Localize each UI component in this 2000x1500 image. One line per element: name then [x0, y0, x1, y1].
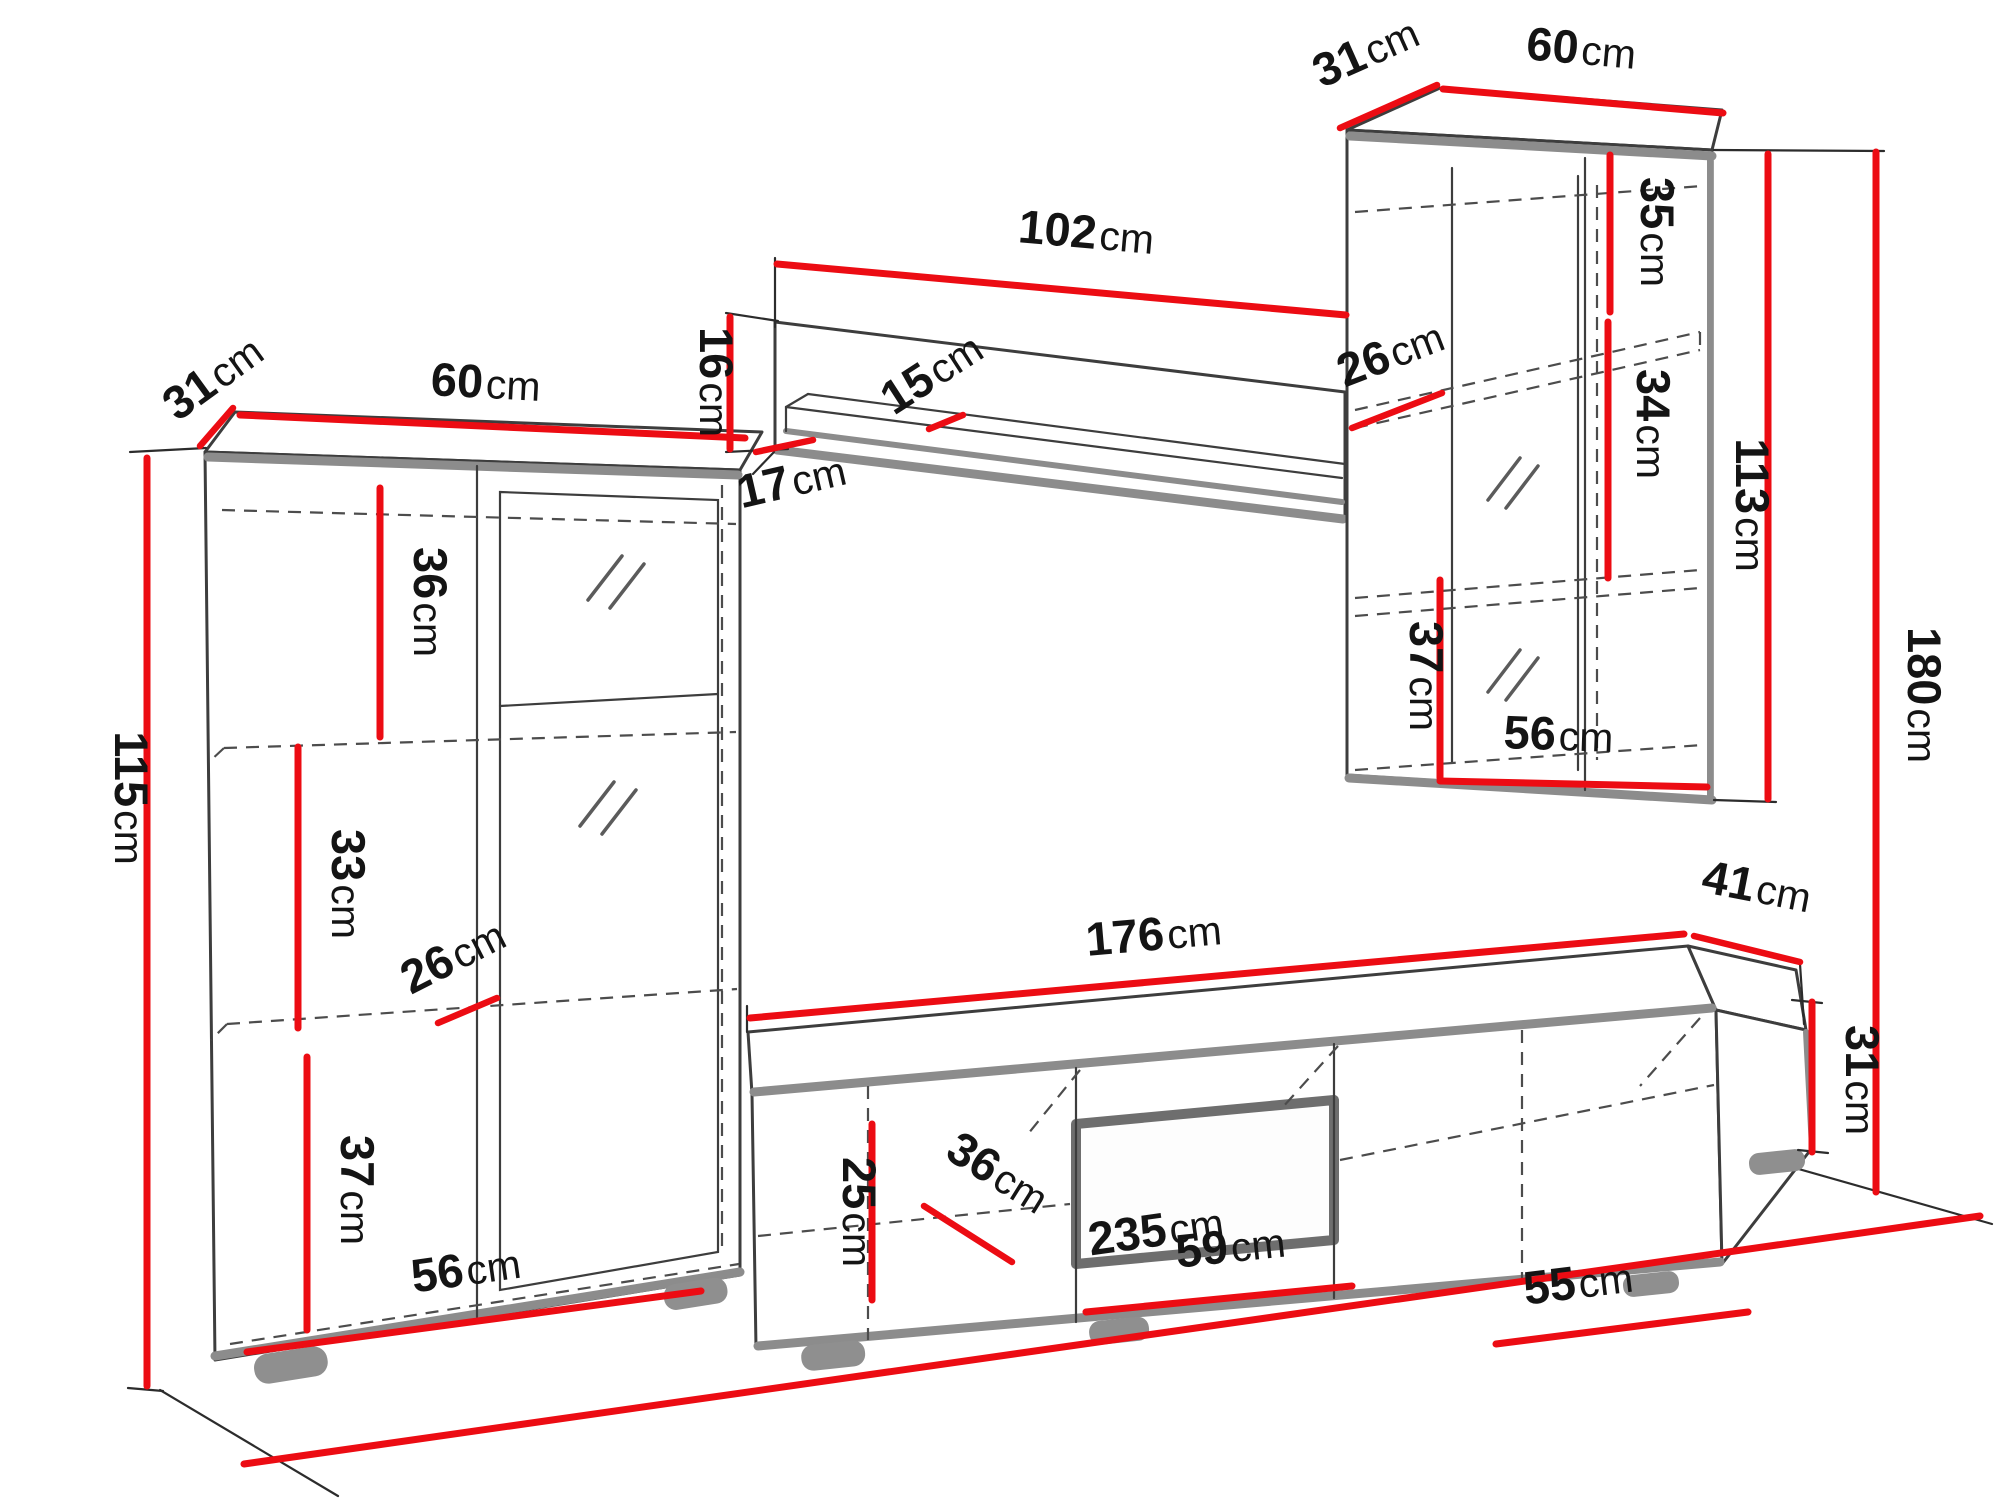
dim-wall-shelf-height: 16cm — [690, 327, 743, 437]
dim-total-height: 180cm — [1898, 627, 1951, 763]
left-display-cabinet — [205, 412, 762, 1386]
dim-tv-stand-depth: 41cm — [1698, 849, 1816, 922]
dim-left-cabinet-upper-shelf: 36cm — [404, 547, 457, 657]
dim-tv-stand-height: 31cm — [1836, 1025, 1889, 1135]
dim-left-cabinet-height: 115cm — [105, 731, 158, 864]
dim-wall-cabinet-depth: 31cm — [1304, 4, 1426, 97]
dim-wall-cabinet-lower-section: 37cm — [1400, 621, 1453, 731]
dim-line-stand-right-compartment — [1496, 1312, 1748, 1344]
dim-left-cabinet-lower-section: 37cm — [331, 1135, 384, 1245]
dim-line-shelf-width — [777, 264, 1346, 315]
furniture-dimension-diagram: 31cm 60cm 115cm 36cm 33cm 26cm 37cm 56cm… — [0, 0, 2000, 1500]
left-cabinet-front-face — [205, 452, 740, 1360]
dim-tv-stand-width: 176cm — [1083, 901, 1223, 966]
dim-left-cabinet-middle-shelf: 33cm — [322, 829, 375, 939]
dim-wall-cabinet-upper-section: 35cm — [1631, 177, 1684, 287]
dim-wall-cabinet-height: 113cm — [1726, 438, 1779, 571]
dim-wall-shelf-width: 102cm — [1016, 199, 1156, 264]
tv-stand-right-face — [1716, 1010, 1812, 1264]
dim-tv-stand-interior-height: 25cm — [833, 1157, 886, 1267]
diagram-svg: 31cm 60cm 115cm 36cm 33cm 26cm 37cm 56cm… — [0, 0, 2000, 1500]
dim-wall-cabinet-width: 60cm — [1524, 16, 1638, 78]
dim-wall-cabinet-middle-section: 34cm — [1627, 369, 1680, 479]
wall-shelf — [775, 322, 1345, 519]
tv-stand — [748, 946, 1812, 1372]
dim-left-cabinet-width: 60cm — [430, 352, 543, 411]
